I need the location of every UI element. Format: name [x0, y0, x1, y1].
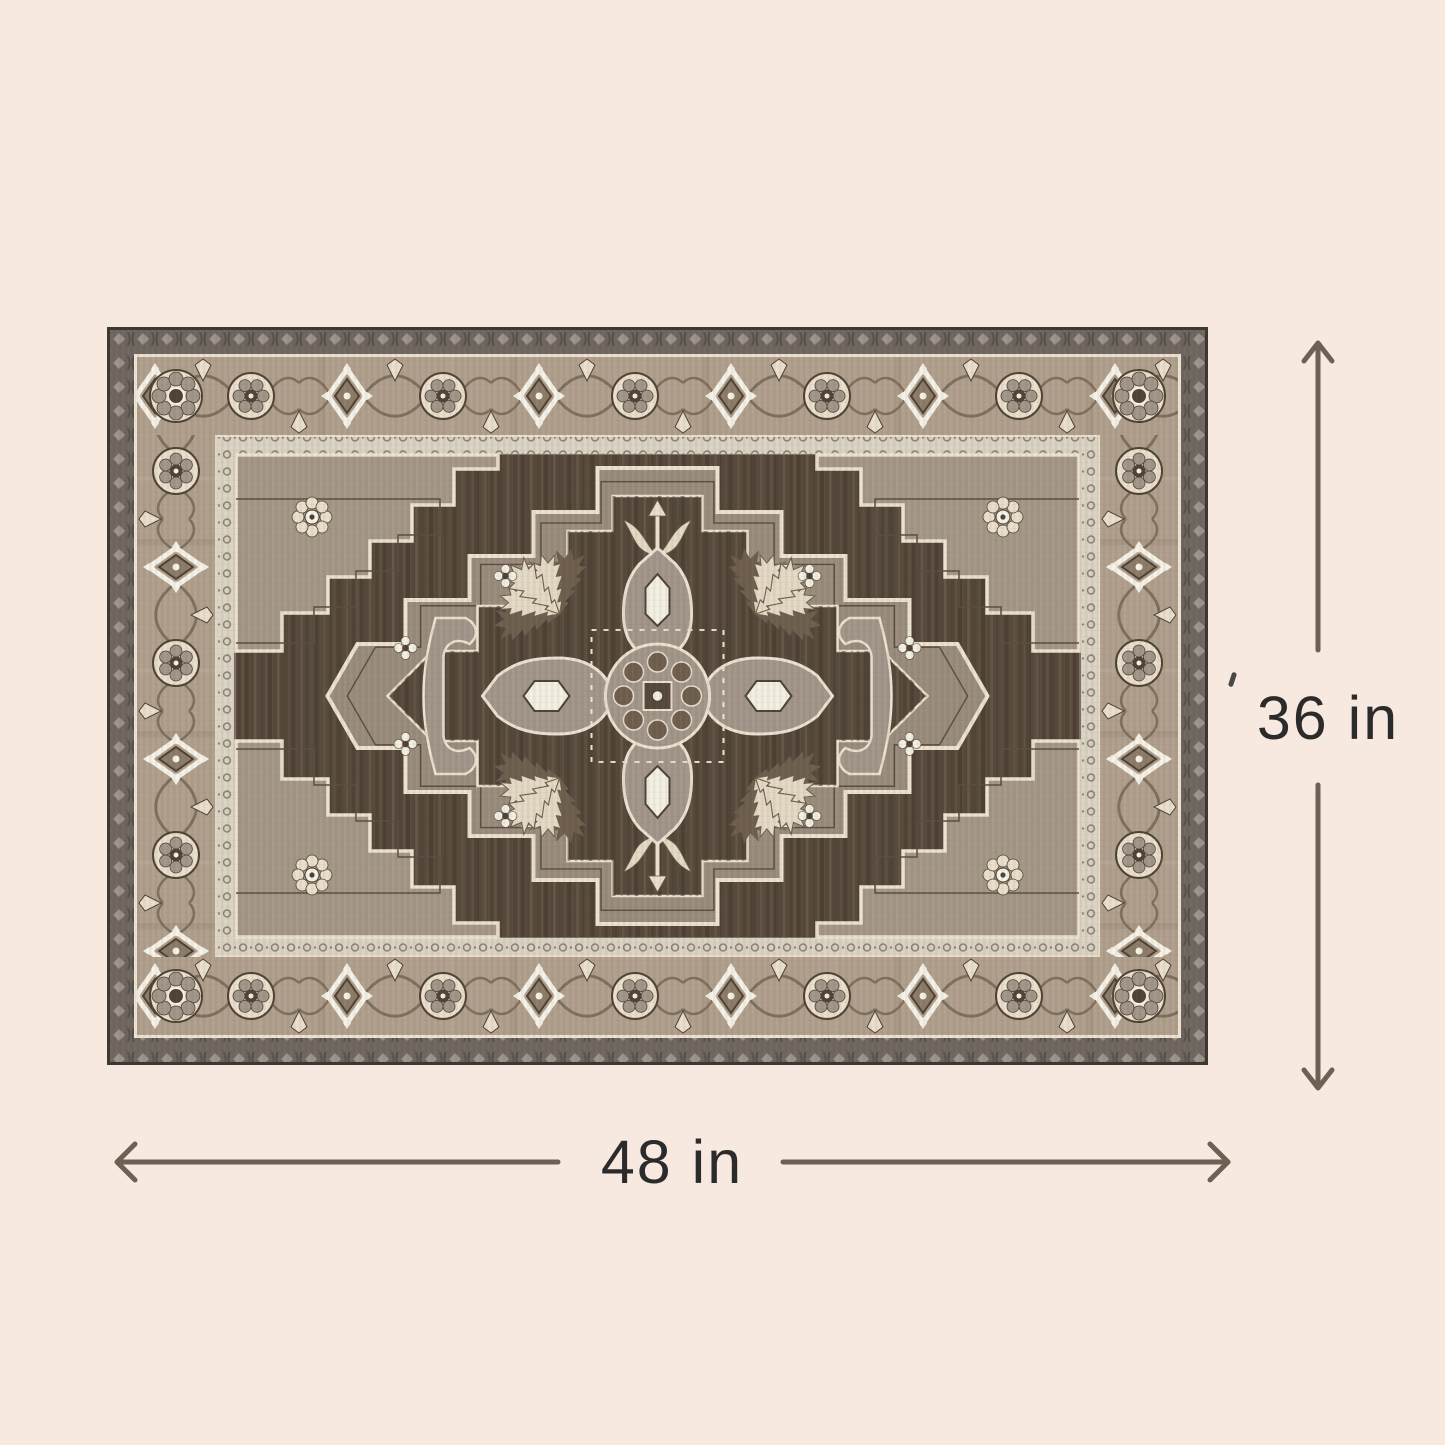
height-label: 36 in	[1228, 686, 1428, 750]
product-dimension-image: 36 in 48 in	[0, 0, 1445, 1445]
rug-weave-texture	[107, 327, 1208, 1065]
width-label: 48 in	[572, 1130, 772, 1194]
rug-image	[107, 327, 1208, 1065]
